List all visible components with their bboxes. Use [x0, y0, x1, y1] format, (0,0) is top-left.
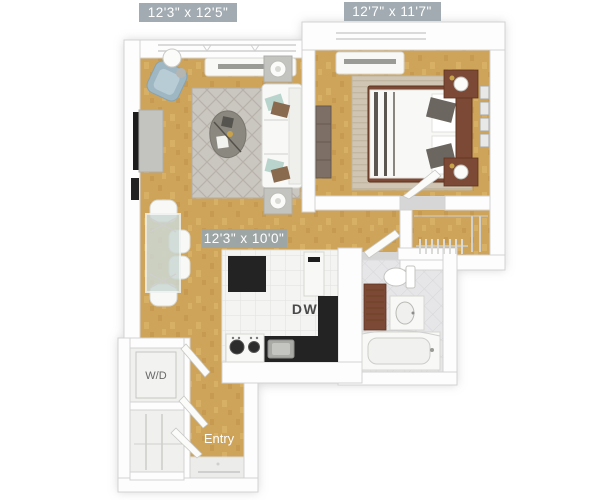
tv	[133, 112, 139, 170]
kitchen-bottom-wall	[222, 362, 362, 383]
bedroom-right-wall	[490, 50, 505, 270]
entry-right-wall	[244, 383, 258, 492]
sofa-back	[289, 88, 301, 184]
badge-bedroom-text: 12'7" x 11'7"	[352, 4, 432, 19]
kitchen-sink	[268, 340, 294, 358]
refrigerator	[304, 252, 324, 296]
linen-bottom-wall	[130, 472, 184, 480]
living-top-wall	[126, 40, 302, 58]
vanity-sink	[390, 296, 424, 330]
floor-plan-image: DW	[0, 0, 600, 500]
side-table-bottom	[264, 188, 292, 214]
wd-left-wall	[118, 338, 130, 478]
entry-label: Entry	[204, 431, 235, 446]
side-table-top	[264, 56, 292, 82]
bedroom-top-wall	[302, 22, 505, 50]
stove	[226, 334, 264, 362]
wd-divider-wall	[130, 402, 184, 410]
bedroom-bottom-wall-right	[445, 196, 490, 210]
wall-art	[131, 178, 139, 200]
sofa	[262, 84, 302, 188]
bedroom-bottom-wall-left	[315, 196, 400, 210]
nightstand-top	[444, 70, 478, 98]
dining-table	[146, 214, 180, 292]
floor-lamp	[163, 49, 181, 67]
nightstand-bottom	[444, 158, 478, 186]
bathtub	[362, 330, 440, 370]
towel-rack	[364, 284, 386, 330]
tv-console	[139, 110, 163, 172]
kitchen-counter-island	[228, 256, 266, 292]
floor-plan-svg: DW	[0, 0, 600, 500]
bath-right-wall	[443, 248, 457, 385]
ac-vent-bedroom	[344, 59, 396, 64]
badge-main-text: 12'3" x 10'0"	[204, 231, 285, 246]
living-bedroom-wall	[302, 50, 315, 212]
table-decor	[227, 131, 233, 137]
toilet	[384, 266, 415, 288]
entry-landing	[190, 457, 244, 479]
linen-closet-floor	[130, 410, 184, 472]
dresser	[316, 106, 331, 178]
coffee-table	[210, 111, 246, 158]
washer-dryer-label: W/D	[145, 370, 166, 382]
dishwasher-label: DW	[292, 301, 318, 317]
badge-living-text: 12'3" x 12'5"	[148, 5, 229, 20]
side-stool	[176, 68, 186, 78]
